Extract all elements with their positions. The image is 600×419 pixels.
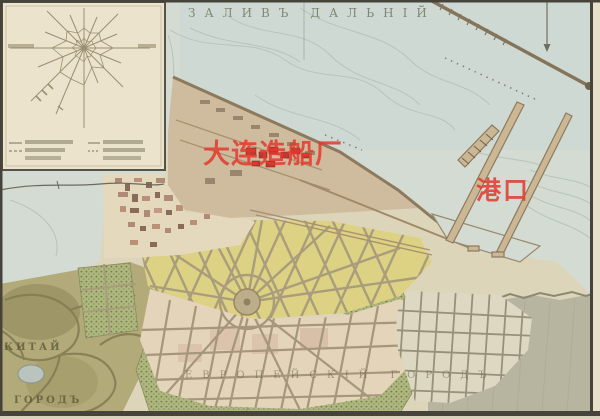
port-annotation: 港口 [476, 176, 530, 205]
historical-map: ЗАЛИВЪ ДАЛЬНІЙ ЕВРОПЕЙСКІЙ ГОРОДЪ КИТАЙ … [0, 0, 600, 419]
central-plaza [234, 289, 260, 315]
map-svg: ЗАЛИВЪ ДАЛЬНІЙ ЕВРОПЕЙСКІЙ ГОРОДЪ КИТАЙ … [0, 0, 600, 419]
scale-label-right [138, 44, 156, 48]
pond [18, 365, 44, 383]
inset-windrose-panel [2, 2, 165, 170]
chinese-town-label: КИТАЙ [4, 340, 63, 353]
shipyard-annotation: 大连造船厂 [203, 138, 343, 170]
european-town-label: ЕВРОПЕЙСКІЙ ГОРОДЪ [185, 369, 496, 381]
bay-title-label: ЗАЛИВЪ ДАЛЬНІЙ [188, 4, 436, 20]
chinese-town-label-2: ГОРОДЪ [14, 395, 82, 406]
scale-label-left [8, 44, 34, 48]
paper-margin [593, 0, 600, 419]
